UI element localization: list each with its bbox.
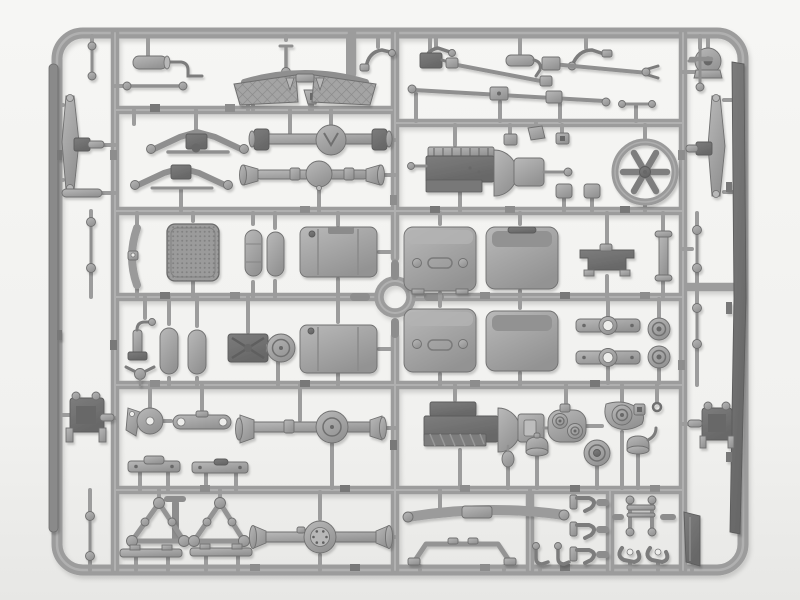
- pulley-wheel: [584, 440, 610, 466]
- bell-crank-disc: [126, 408, 163, 436]
- air-tank-a: [245, 230, 262, 276]
- transfer-case-b: [605, 402, 645, 430]
- toolbox-b: [486, 227, 558, 289]
- brake-drum-a: [648, 318, 670, 340]
- engine-mount-drum: [228, 334, 295, 362]
- toolbox-d: [486, 311, 558, 371]
- radiator-core: [167, 224, 219, 281]
- brake-drum-b: [648, 346, 670, 368]
- sprue-photo-svg: [0, 0, 800, 600]
- toolbox-c: [404, 309, 476, 372]
- stowage-plate: [684, 512, 700, 566]
- fuel-tank-b: [300, 325, 377, 373]
- spring-seat-a: [576, 317, 640, 335]
- air-tank-d: [188, 330, 206, 374]
- toolbox-a: [404, 227, 476, 294]
- spring-seat-b: [576, 349, 640, 367]
- air-tank-b: [267, 232, 284, 276]
- sprue-photo: [0, 0, 800, 600]
- tie-capsule-left: [62, 189, 102, 197]
- fuel-tank-a: [300, 227, 377, 277]
- air-tank-c: [160, 328, 178, 374]
